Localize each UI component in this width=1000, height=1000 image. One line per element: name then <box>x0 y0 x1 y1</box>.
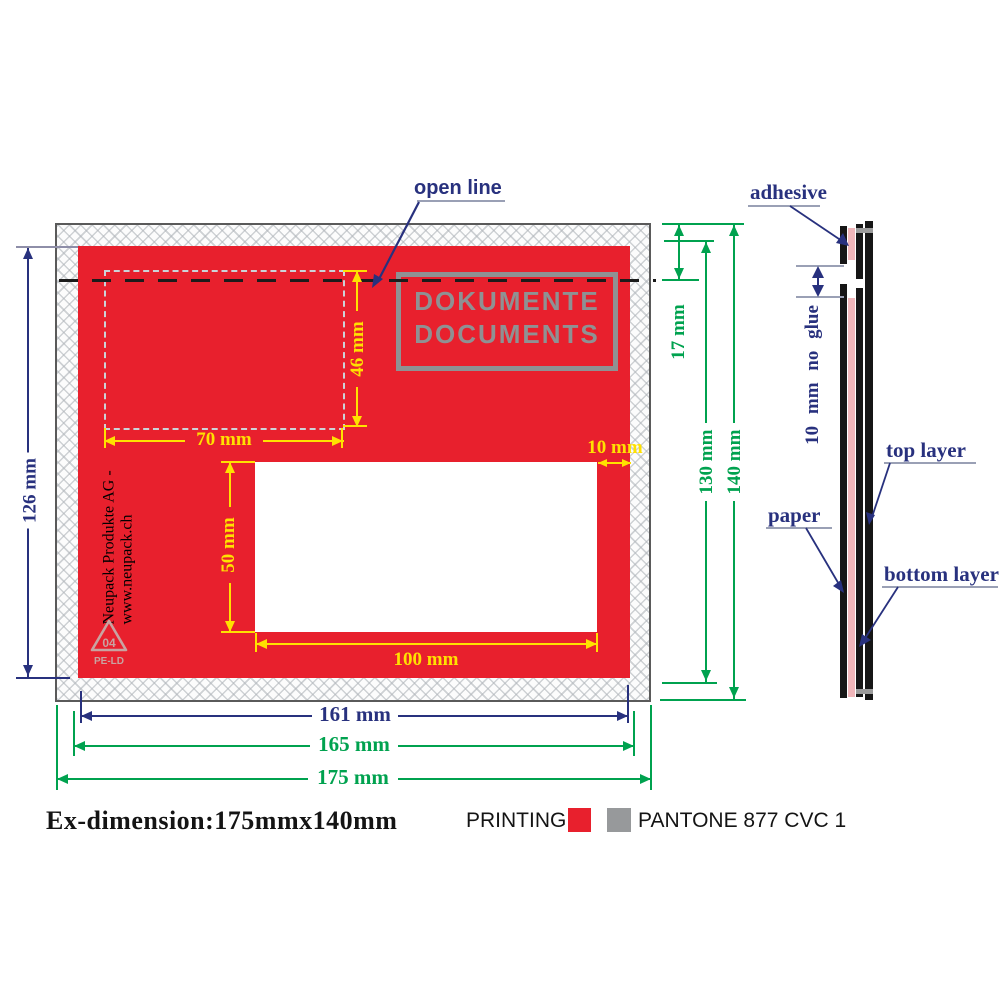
printed-text-line1: DOKUMENTE <box>401 285 613 318</box>
arrowhead <box>23 248 33 259</box>
bottom-layer-bar <box>856 224 863 697</box>
printed-text-line2: DOCUMENTS <box>401 318 613 351</box>
arrowhead <box>23 665 33 676</box>
arrowhead <box>701 242 711 253</box>
dim-label-126: 126 mm <box>21 453 42 529</box>
ext-line <box>662 279 699 281</box>
adhesive-underline <box>748 205 820 207</box>
no-glue-label: 10 mm no glue <box>802 300 822 450</box>
ext-tick <box>221 461 255 463</box>
recycling-icon: 04 PE-LD <box>86 614 132 670</box>
arrowhead <box>622 459 631 467</box>
arrowhead <box>623 741 634 751</box>
dim-label-140: 140 mm <box>725 423 745 501</box>
dim-label-50: 50 mm <box>219 507 239 583</box>
no-glue-gap <box>856 279 863 288</box>
dim-label-165: 165 mm <box>310 733 398 756</box>
ext-tick <box>255 633 257 652</box>
recycle-material: PE-LD <box>94 656 124 667</box>
recycle-code: 04 <box>102 636 116 650</box>
dim-label-175: 175 mm <box>308 766 398 789</box>
dim-label-100: 100 mm <box>380 650 472 672</box>
top-layer-bar <box>865 221 873 700</box>
no-glue-gap <box>840 264 847 284</box>
address-zone-dashed-rect <box>104 270 345 430</box>
bottom-layer-underline <box>882 586 998 588</box>
dim-label-46: 46 mm <box>348 311 368 387</box>
arrowhead <box>57 774 68 784</box>
top-layer-label: top layer <box>886 438 966 463</box>
arrowhead <box>729 687 739 698</box>
dim-label-70: 70 mm <box>185 430 263 451</box>
adhesive-label: adhesive <box>750 180 827 205</box>
adhesive-strip <box>848 228 855 697</box>
arrowhead <box>701 670 711 681</box>
open-line-underline <box>417 200 505 202</box>
weld-seam-bottom <box>856 689 873 694</box>
printing-label: PRINTING: <box>466 809 572 833</box>
arrowhead <box>352 271 362 282</box>
arrowhead <box>225 462 235 473</box>
arrowhead <box>256 639 267 649</box>
arrowhead <box>74 741 85 751</box>
dim-label-161: 161 mm <box>312 703 398 726</box>
ext-tick <box>104 428 106 448</box>
no-glue-gap <box>848 260 855 298</box>
dim-label-17: 17 mm <box>669 297 689 367</box>
paper-label: paper <box>768 503 821 528</box>
company-text: Neupack Produkte AG - www.neupack.ch <box>101 465 116 625</box>
dim-line-100 <box>256 643 597 645</box>
arrowhead <box>598 459 607 467</box>
printing-gray-swatch <box>607 808 631 832</box>
ext-tick <box>343 425 367 427</box>
pantone-label: PANTONE 877 CVC 1 <box>638 809 846 833</box>
ext-tick <box>596 633 598 652</box>
ext-tick <box>221 631 255 633</box>
diagram-canvas: DOKUMENTE DOCUMENTS Neupack Produkte AG … <box>0 0 1000 1000</box>
dim-label-130: 130 mm <box>697 423 717 501</box>
ext-line <box>662 682 717 684</box>
open-line-label: open line <box>414 177 509 200</box>
ext-line <box>660 699 746 701</box>
arrowhead <box>674 268 684 279</box>
ext-tick <box>343 270 367 272</box>
bottom-layer-label: bottom layer <box>884 562 999 587</box>
arrowhead <box>812 285 824 297</box>
arrowhead <box>729 225 739 236</box>
printing-red-swatch <box>568 808 591 832</box>
dim-label-10: 10 mm <box>582 438 648 458</box>
arrowhead <box>640 774 651 784</box>
printed-text-box: DOKUMENTE DOCUMENTS <box>396 272 618 371</box>
arrowhead <box>674 225 684 236</box>
document-window <box>255 462 597 632</box>
ex-dimension-text: Ex-dimension:175mmx140mm <box>46 806 397 836</box>
paper-underline <box>766 527 832 529</box>
weld-seam-top <box>856 228 873 233</box>
arrowhead <box>81 711 92 721</box>
top-layer-underline <box>884 462 976 464</box>
ext-line <box>16 677 70 679</box>
ext-tick <box>341 428 343 448</box>
arrowhead <box>812 266 824 278</box>
arrowhead <box>617 711 628 721</box>
